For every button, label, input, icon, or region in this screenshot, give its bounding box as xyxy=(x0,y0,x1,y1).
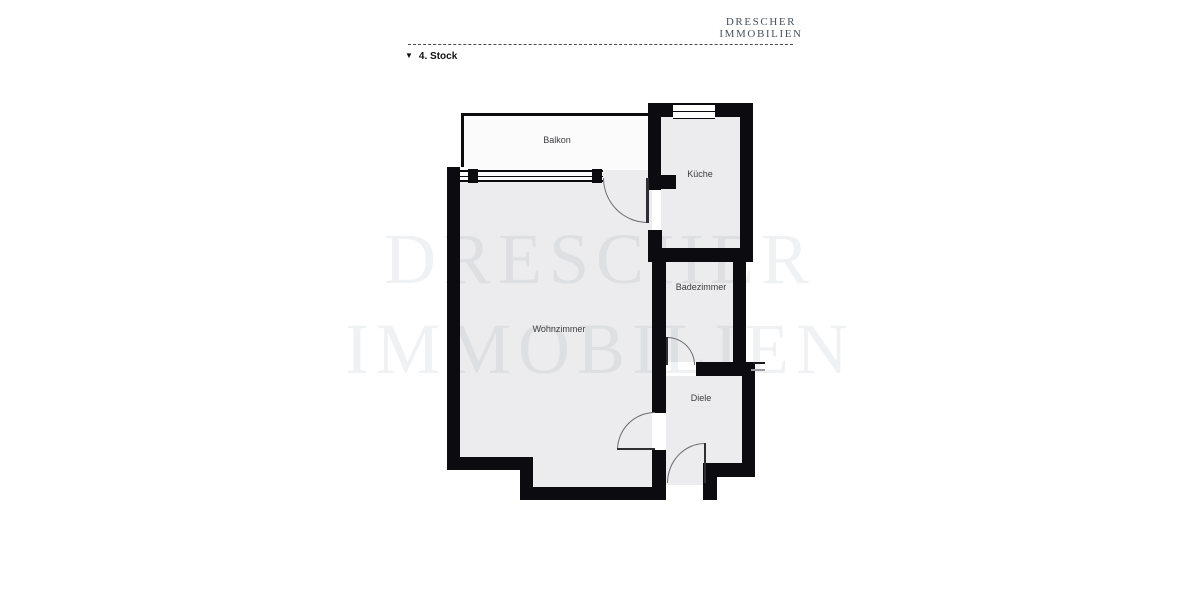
window-end-cap xyxy=(592,169,602,183)
floor-label: 4. Stock xyxy=(419,51,457,62)
room-label-wohnzimmer: Wohnzimmer xyxy=(533,324,586,334)
wall-segment xyxy=(740,103,753,262)
brand-line-1: DRESCHER xyxy=(706,17,816,29)
wall-segment xyxy=(520,487,666,500)
room-label-balkon: Balkon xyxy=(543,135,571,145)
brand-line-2: IMMOBILIEN xyxy=(706,29,816,41)
door-leaf-wohnzimmer xyxy=(617,448,655,450)
door-leaf-badezimmer xyxy=(666,337,668,365)
window-symbol-kueche xyxy=(673,104,715,119)
dashed-divider-line xyxy=(408,44,793,45)
room-label-kueche: Küche xyxy=(687,169,713,179)
wall-segment xyxy=(648,175,676,189)
wall-segment xyxy=(703,463,755,477)
wall-segment xyxy=(447,167,460,470)
door-leaf-entrance xyxy=(704,443,706,483)
floor-indicator: ▼4. Stock xyxy=(405,51,457,62)
section-marker-line xyxy=(751,369,765,371)
window-end-cap xyxy=(468,169,478,183)
wall-segment xyxy=(742,362,755,477)
room-floor-wohnzimmer xyxy=(460,181,652,457)
room-label-diele: Diele xyxy=(691,393,712,403)
room-label-badezimmer: Badezimmer xyxy=(676,282,727,292)
triangle-down-icon: ▼ xyxy=(405,51,413,60)
window-symbol-wohnzimmer xyxy=(460,170,603,182)
page: DRESCHER IMMOBILIEN ▼4. Stock DRESCHER I… xyxy=(0,0,1200,600)
wall-segment xyxy=(733,248,746,376)
door-leaf-balcony xyxy=(646,178,649,223)
section-marker-line xyxy=(753,362,765,364)
wall-segment xyxy=(461,113,464,167)
wall-segment xyxy=(461,113,651,116)
brand-logo: DRESCHER IMMOBILIEN xyxy=(706,17,816,40)
wall-segment xyxy=(652,248,666,413)
room-floor-wohnzimmer-lower xyxy=(533,457,652,487)
